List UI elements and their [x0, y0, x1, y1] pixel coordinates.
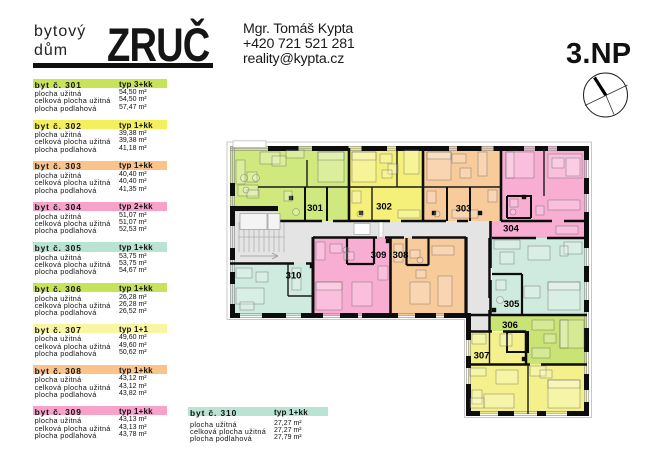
svg-text:301: 301 [307, 203, 324, 214]
svg-text:305: 305 [504, 299, 521, 310]
svg-text:306: 306 [502, 320, 518, 331]
svg-text:310: 310 [286, 271, 302, 282]
svg-text:308: 308 [393, 250, 409, 261]
svg-text:304: 304 [503, 224, 520, 235]
svg-text:307: 307 [474, 351, 490, 362]
svg-text:303: 303 [456, 204, 472, 215]
svg-text:302: 302 [376, 202, 392, 213]
svg-text:309: 309 [371, 250, 387, 261]
